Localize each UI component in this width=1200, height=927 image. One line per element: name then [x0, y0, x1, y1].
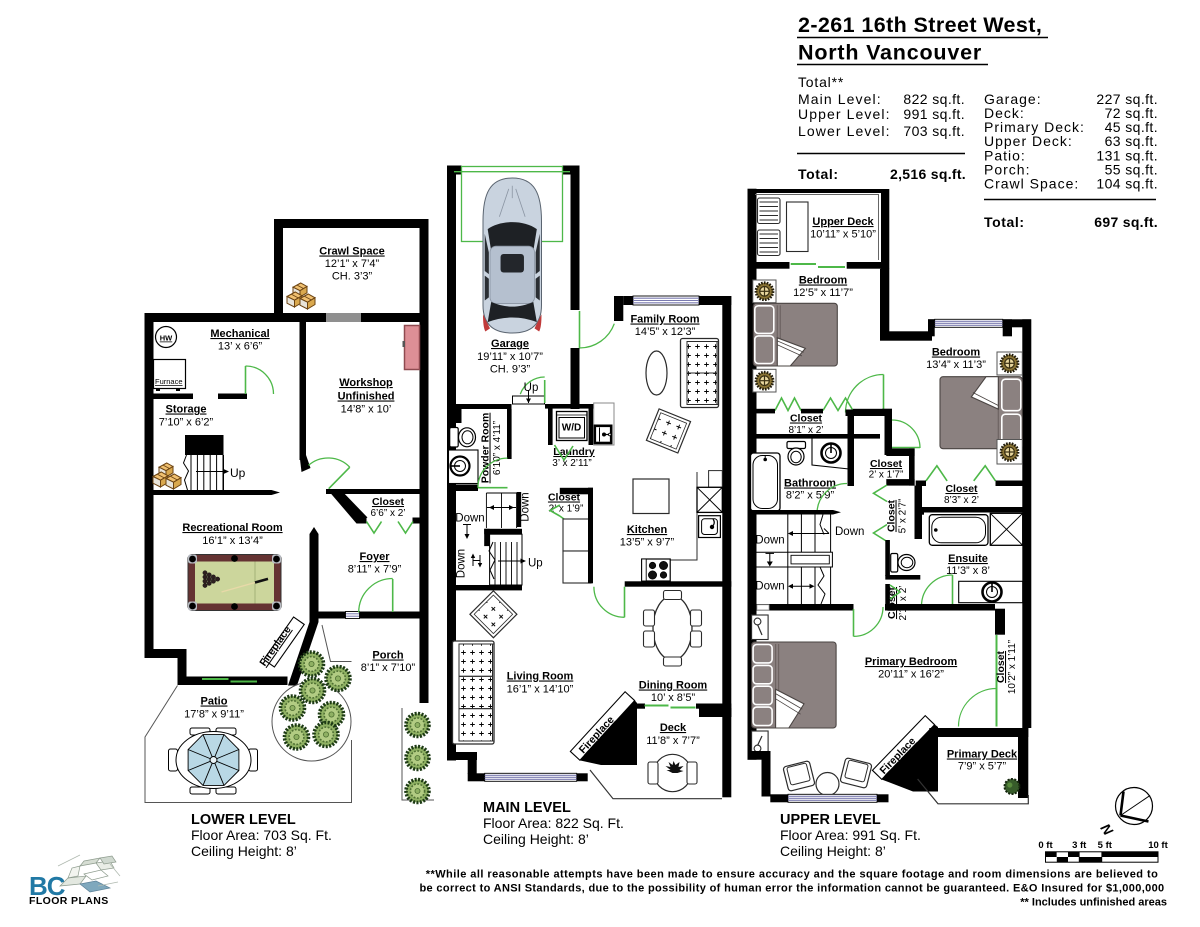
svg-text:5’ x 2’7”: 5’ x 2’7”: [898, 499, 909, 534]
svg-text:Mechanical: Mechanical: [210, 328, 269, 340]
svg-text:Bedroom: Bedroom: [932, 347, 981, 359]
svg-text:Up: Up: [528, 558, 543, 570]
svg-text:17’8” x 9’11”: 17’8” x 9’11”: [184, 709, 244, 721]
svg-text:Total:: Total:: [984, 214, 1025, 230]
svg-text:13’5” x 9’7”: 13’5” x 9’7”: [620, 537, 675, 549]
svg-text:Closet: Closet: [995, 650, 1007, 683]
svg-text:Floor Area: 822 Sq. Ft.: Floor Area: 822 Sq. Ft.: [483, 815, 624, 831]
svg-text:2,516 sq.ft.: 2,516 sq.ft.: [890, 166, 966, 182]
svg-text:FLOOR PLANS: FLOOR PLANS: [29, 895, 109, 907]
svg-text:Closet: Closet: [870, 458, 903, 470]
svg-text:Upper Deck: Upper Deck: [812, 216, 874, 228]
svg-text:UPPER LEVEL: UPPER LEVEL: [780, 812, 881, 828]
svg-text:Living Room: Living Room: [507, 671, 574, 683]
svg-text:104 sq.ft.: 104 sq.ft.: [1096, 176, 1158, 192]
svg-text:CH. 9’3”: CH. 9’3”: [490, 364, 531, 376]
svg-text:Garage: Garage: [491, 338, 529, 350]
svg-text:Bedroom: Bedroom: [799, 275, 848, 287]
svg-text:Kitchen: Kitchen: [627, 524, 668, 536]
svg-text:LOWER LEVEL: LOWER LEVEL: [191, 812, 296, 828]
svg-text:Dining Room: Dining Room: [639, 680, 708, 692]
svg-text:Down: Down: [520, 492, 532, 521]
svg-text:CH. 3’3”: CH. 3’3”: [332, 271, 373, 283]
svg-text:Lower Level:: Lower Level:: [798, 123, 891, 139]
svg-text:Closet: Closet: [548, 492, 581, 504]
svg-text:Main Level:: Main Level:: [798, 91, 882, 107]
svg-text:Down: Down: [755, 581, 784, 593]
svg-text:991 sq.ft.: 991 sq.ft.: [903, 106, 965, 122]
svg-text:3’ x 2’11”: 3’ x 2’11”: [552, 458, 591, 469]
svg-text:11’8” x 7’7”: 11’8” x 7’7”: [646, 735, 700, 747]
svg-text:0 ft: 0 ft: [1038, 840, 1053, 851]
svg-text:Foyer: Foyer: [360, 551, 391, 563]
svg-text:Up: Up: [230, 466, 246, 480]
svg-text:8’11” x 7’9”: 8’11” x 7’9”: [348, 564, 402, 576]
svg-text:be correct to ANSI Standards,: be correct to ANSI Standards, due to the…: [419, 883, 1164, 895]
svg-text:Down: Down: [835, 526, 864, 538]
svg-text:Crawl Space: Crawl Space: [319, 246, 384, 258]
svg-text:Storage: Storage: [166, 404, 207, 416]
svg-text:Family Room: Family Room: [630, 314, 699, 326]
svg-text:Furnace: Furnace: [155, 377, 183, 386]
svg-text:Down: Down: [455, 513, 484, 525]
svg-text:Up: Up: [524, 382, 539, 394]
svg-text:14’5” x 12’3”: 14’5” x 12’3”: [635, 326, 696, 338]
svg-text:2’ x 1’7”: 2’ x 1’7”: [869, 470, 904, 481]
svg-text:Recreational Room: Recreational Room: [182, 522, 282, 534]
svg-text:822 sq.ft.: 822 sq.ft.: [903, 91, 965, 107]
svg-text:8’3” x 2’: 8’3” x 2’: [944, 495, 979, 506]
svg-text:10’ x 8’5”: 10’ x 8’5”: [651, 692, 696, 704]
svg-text:10’2” x 1’11”: 10’2” x 1’11”: [1007, 640, 1018, 694]
svg-text:Closet: Closet: [372, 496, 405, 508]
svg-text:703 sq.ft.: 703 sq.ft.: [903, 123, 965, 139]
svg-text:5 ft: 5 ft: [1098, 840, 1113, 851]
svg-text:697 sq.ft.: 697 sq.ft.: [1094, 214, 1158, 230]
svg-text:Crawl Space:: Crawl Space:: [984, 176, 1079, 192]
svg-text:Closet: Closet: [790, 413, 823, 425]
svg-text:Primary Bedroom: Primary Bedroom: [865, 656, 958, 668]
svg-text:Primary Deck: Primary Deck: [947, 749, 1018, 761]
svg-text:6’6” x 2’: 6’6” x 2’: [370, 508, 405, 519]
svg-text:MAIN LEVEL: MAIN LEVEL: [483, 800, 571, 816]
svg-text:Patio: Patio: [201, 696, 228, 708]
svg-text:HW: HW: [160, 334, 173, 343]
svg-text:W/D: W/D: [562, 423, 581, 434]
svg-text:Deck: Deck: [660, 722, 687, 734]
svg-text:Unfinished: Unfinished: [338, 391, 395, 403]
svg-text:Ceiling Height: 8’: Ceiling Height: 8’: [780, 843, 886, 859]
svg-text:14’8” x 10’: 14’8” x 10’: [341, 404, 392, 416]
svg-text:North Vancouver: North Vancouver: [798, 41, 982, 65]
svg-text:12’5” x 11’7”: 12’5” x 11’7”: [793, 287, 853, 299]
svg-text:19’11” x 10’7”: 19’11” x 10’7”: [477, 351, 543, 363]
svg-text:Upper Level:: Upper Level:: [798, 106, 891, 122]
svg-text:Down: Down: [755, 535, 784, 547]
svg-text:Closet: Closet: [886, 586, 898, 619]
svg-text:2-261 16th Street West,: 2-261 16th Street West,: [798, 13, 1042, 37]
svg-text:** Includes unfinished areas: ** Includes unfinished areas: [1020, 897, 1167, 909]
svg-text:Floor Area: 703 Sq. Ft.: Floor Area: 703 Sq. Ft.: [191, 827, 332, 843]
svg-text:20’11” x 16’2”: 20’11” x 16’2”: [878, 669, 944, 681]
svg-text:Closet: Closet: [886, 499, 898, 532]
svg-text:**While all reasonable attempt: **While all reasonable attempts have bee…: [426, 869, 1159, 881]
svg-text:Porch: Porch: [372, 650, 403, 662]
svg-text:Down: Down: [456, 549, 468, 578]
svg-text:7’10” x 6’2”: 7’10” x 6’2”: [159, 417, 214, 429]
svg-text:6’10” x 4’11”: 6’10” x 4’11”: [492, 421, 503, 475]
svg-text:12’1” x 7’4”: 12’1” x 7’4”: [325, 258, 380, 270]
svg-text:13’ x 6’6”: 13’ x 6’6”: [218, 341, 263, 353]
svg-text:8’1” x 7’10”: 8’1” x 7’10”: [361, 662, 416, 674]
svg-text:7’9” x 5’7”: 7’9” x 5’7”: [958, 761, 1007, 773]
svg-text:16’1” x 14’10”: 16’1” x 14’10”: [507, 684, 574, 696]
svg-text:Floor Area: 991 Sq. Ft.: Floor Area: 991 Sq. Ft.: [780, 827, 921, 843]
svg-text:2’1” x 2’: 2’1” x 2’: [898, 585, 909, 620]
svg-text:10 ft: 10 ft: [1148, 840, 1168, 851]
svg-text:10’11” x 5’10”: 10’11” x 5’10”: [810, 229, 876, 241]
svg-text:Total**: Total**: [798, 74, 844, 90]
svg-text:Total:: Total:: [798, 166, 839, 182]
svg-text:16’1” x 13’4”: 16’1” x 13’4”: [202, 535, 263, 547]
svg-text:3 ft: 3 ft: [1072, 840, 1087, 851]
svg-text:Ensuite: Ensuite: [948, 553, 988, 565]
svg-text:Closet: Closet: [945, 483, 978, 495]
svg-text:Bathroom: Bathroom: [784, 478, 836, 490]
svg-text:Workshop: Workshop: [339, 377, 393, 389]
svg-text:13’4” x 11’3”: 13’4” x 11’3”: [926, 359, 986, 371]
svg-text:Ceiling Height: 8’: Ceiling Height: 8’: [483, 831, 589, 847]
svg-text:Ceiling Height: 8’: Ceiling Height: 8’: [191, 843, 297, 859]
